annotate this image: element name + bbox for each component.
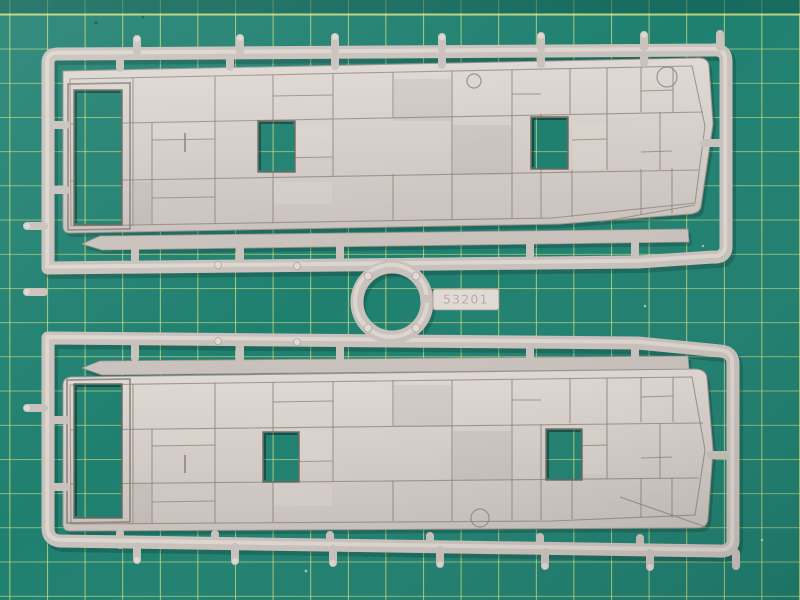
photo-sprue-on-cutting-mat: 53201 53201 bbox=[0, 0, 800, 600]
photo-canvas: 53201 53201 bbox=[0, 0, 800, 600]
lighting-vignette bbox=[0, 0, 800, 600]
